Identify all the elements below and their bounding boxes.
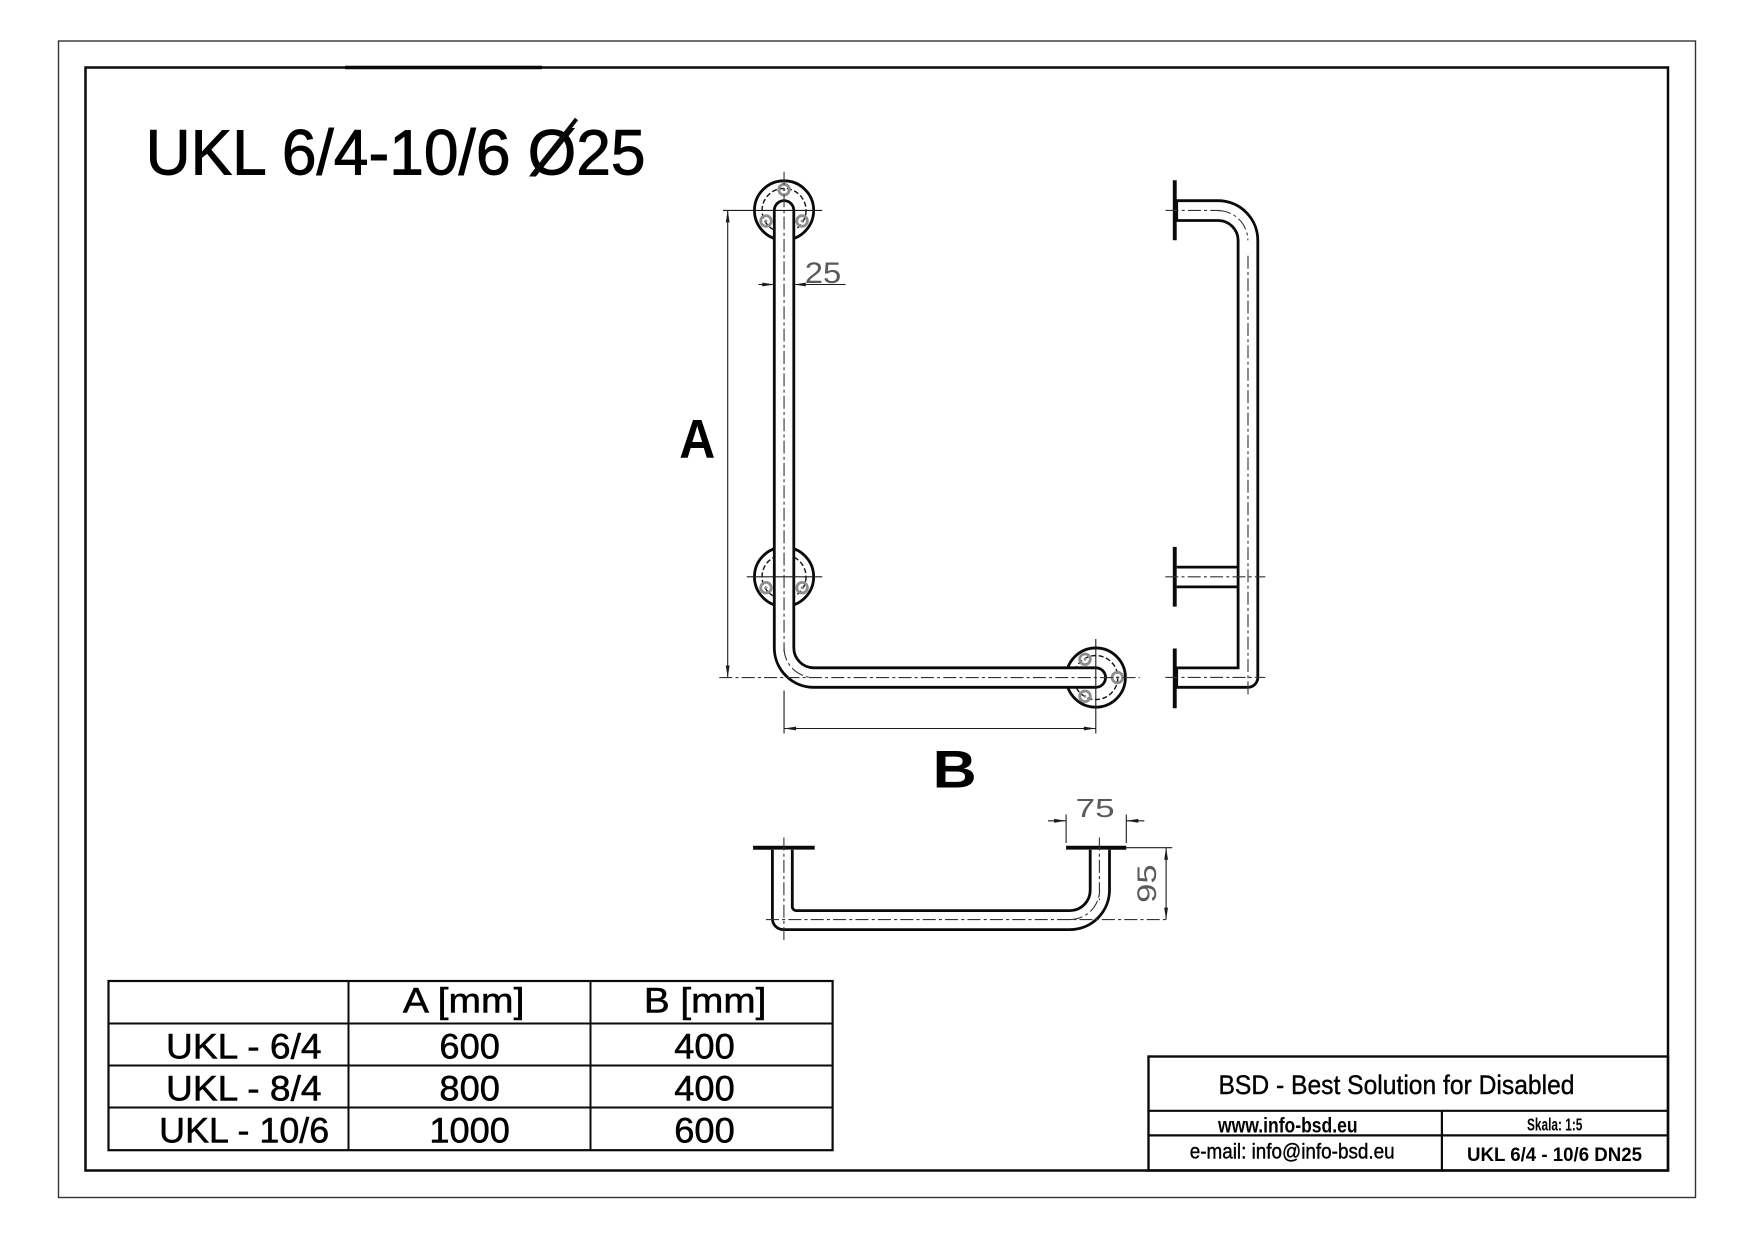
svg-text:400: 400 [674,1069,735,1109]
svg-text:A [mm]: A [mm] [403,980,525,1020]
svg-text:B: B [933,741,977,800]
svg-text:600: 600 [674,1111,735,1151]
svg-text:75: 75 [1076,793,1115,823]
svg-text:UKL - 10/6: UKL - 10/6 [159,1111,329,1151]
svg-text:600: 600 [439,1027,500,1067]
svg-text:BSD - Best Solution for Disabl: BSD - Best Solution for Disabled [1219,1070,1575,1100]
svg-text:www.info-bsd.eu: www.info-bsd.eu [1217,1114,1357,1137]
svg-text:A: A [679,408,715,469]
svg-text:1000: 1000 [429,1111,510,1151]
svg-text:25: 25 [805,257,842,290]
svg-text:95: 95 [1132,864,1162,903]
svg-text:e-mail: info@info-bsd.eu: e-mail: info@info-bsd.eu [1190,1141,1395,1164]
svg-text:UKL - 8/4: UKL - 8/4 [166,1069,322,1109]
svg-text:UKL 6/4 - 10/6 DN25: UKL 6/4 - 10/6 DN25 [1467,1145,1642,1166]
svg-text:Skala: 1:5: Skala: 1:5 [1527,1115,1583,1135]
svg-text:UKL - 6/4: UKL - 6/4 [166,1027,322,1067]
svg-text:400: 400 [674,1027,735,1067]
svg-text:B [mm]: B [mm] [644,980,767,1020]
svg-text:800: 800 [439,1069,500,1109]
